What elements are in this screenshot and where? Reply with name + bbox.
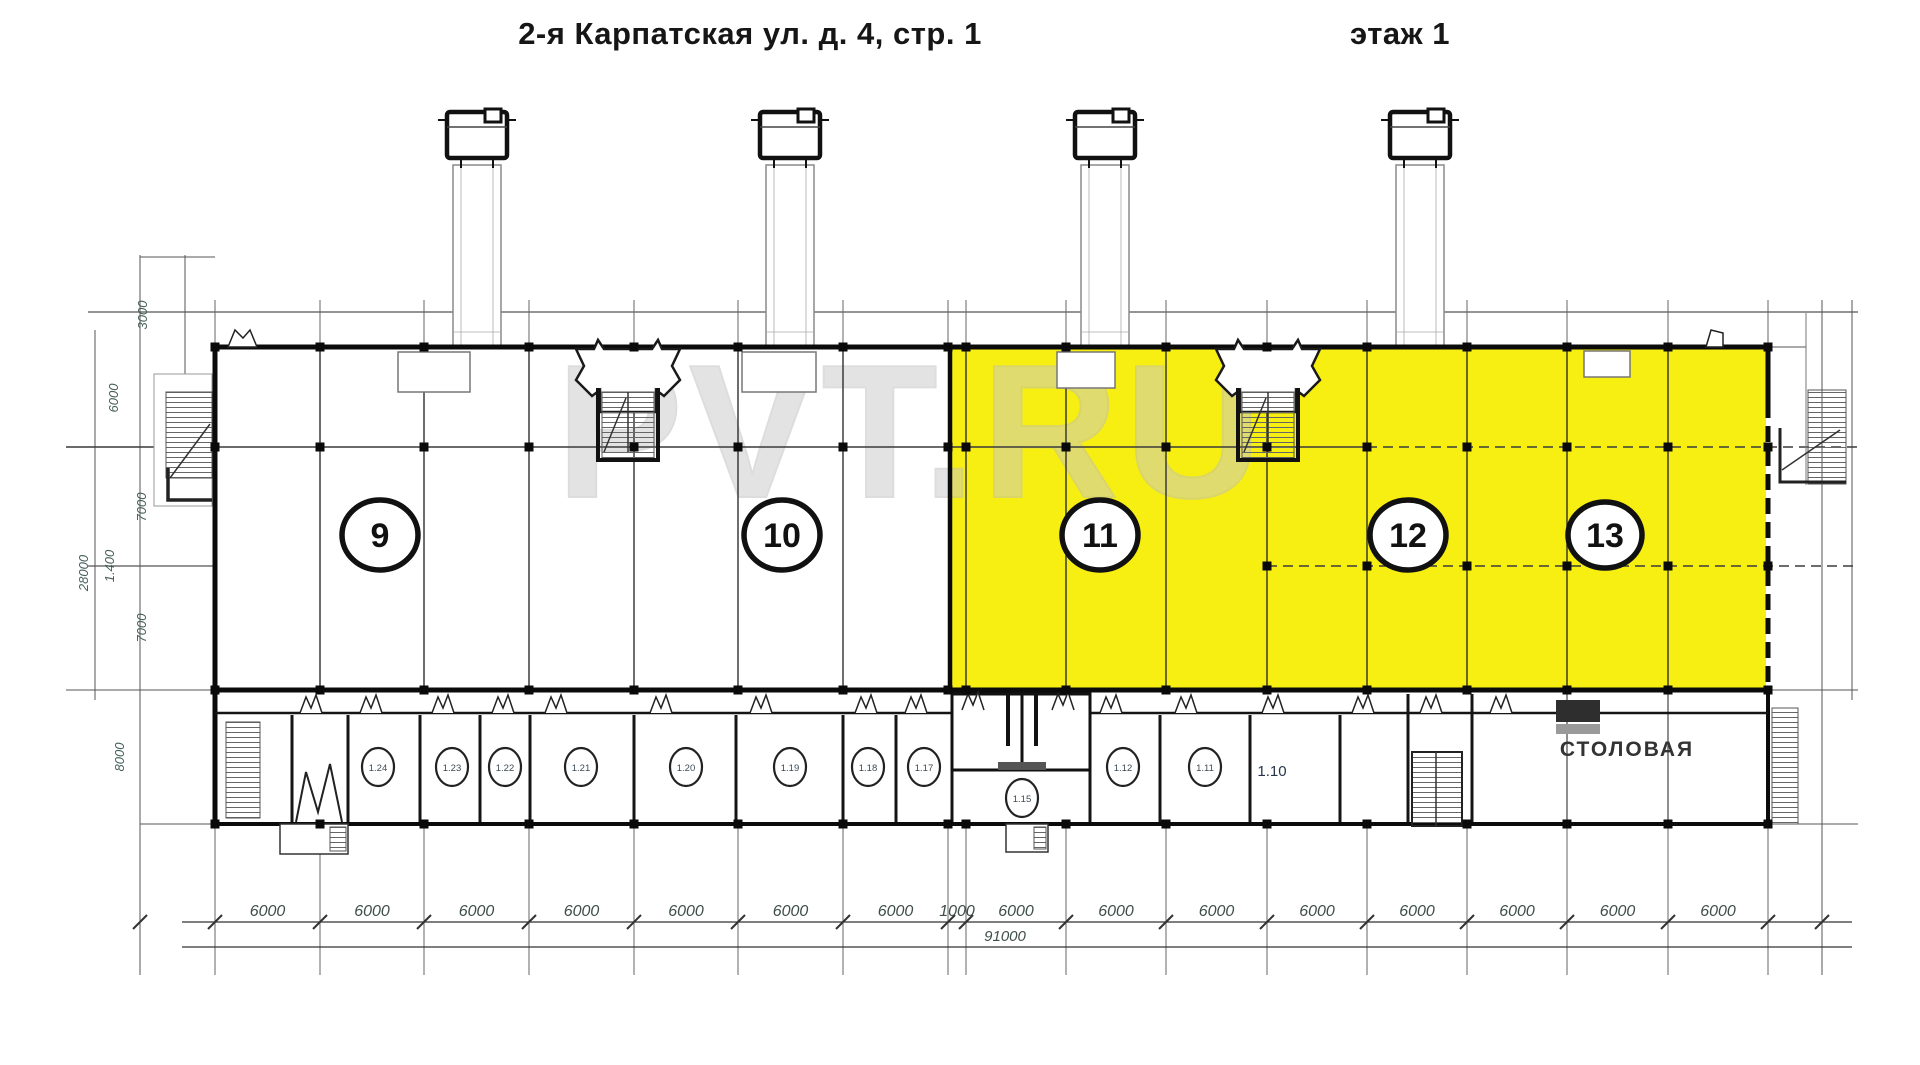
chimney	[751, 109, 829, 347]
section-circle-12: 12	[1370, 500, 1446, 570]
section-circle-10: 10	[744, 500, 820, 570]
dimension-label: 6000	[668, 903, 704, 920]
dimension-label: 6000	[878, 903, 914, 920]
exterior-staircase	[1772, 708, 1798, 824]
section-circle-9: 9	[342, 500, 418, 570]
room-number: 1.24	[369, 763, 388, 774]
chimney	[438, 109, 516, 347]
room-number-bubble: 1.12	[1107, 748, 1139, 786]
dimension-label: 3000	[135, 300, 150, 330]
section-circle-11: 11	[1062, 500, 1138, 570]
dimension-label: 6000	[1700, 903, 1736, 920]
wall-recess	[1057, 352, 1115, 388]
wall-recess	[742, 352, 816, 392]
svg-text:11: 11	[1082, 517, 1118, 555]
floor-plan-page: 2-я Карпатская ул. д. 4, стр. 1 этаж 1 P…	[0, 0, 1920, 1065]
room-number-bubble: 1.21	[565, 748, 597, 786]
room-number: 1.21	[572, 763, 591, 774]
dimension-label: 6000	[1299, 903, 1335, 920]
room-number-bubble: 1.22	[489, 748, 521, 786]
svg-text:13: 13	[1586, 517, 1624, 555]
wall-recess	[1584, 351, 1630, 377]
canteen-counter	[1556, 724, 1600, 734]
floor-plan-drawing: PVT.RU 1.241.231.221.211.201.191.181.171…	[0, 0, 1920, 1065]
dimension-label: 6000	[998, 903, 1034, 920]
svg-text:10: 10	[763, 517, 801, 555]
dimension-label: 6000	[1600, 903, 1636, 920]
room-number: 1.15	[1013, 794, 1032, 805]
room-number: 1.17	[915, 763, 934, 774]
entry-steps	[330, 827, 346, 851]
section-circle-13: 13	[1568, 502, 1642, 568]
room-number-bubble: 1.17	[908, 748, 940, 786]
total-dimension-label: 91000	[984, 928, 1026, 945]
dimension-label: 6000	[354, 903, 390, 920]
dimension-label: 6000	[250, 903, 286, 920]
chimney	[1066, 109, 1144, 347]
room-number: 1.19	[781, 763, 800, 774]
door-swing	[228, 330, 257, 347]
room-number-bubble: 1.24	[362, 748, 394, 786]
dimension-label: 28000	[76, 554, 91, 592]
canteen-label: СТОЛОВАЯ	[1560, 738, 1694, 761]
dimension-label: 6000	[1098, 903, 1134, 920]
interior-staircase	[226, 722, 342, 822]
dimension-label: 8000	[112, 742, 127, 772]
room-1-10-label: 1.10	[1257, 763, 1286, 780]
exterior-staircase	[1780, 313, 1846, 485]
exterior-staircase	[154, 374, 212, 506]
room-number: 1.23	[443, 763, 462, 774]
room-number-bubble: 1.19	[774, 748, 806, 786]
dimension-label: 6000	[564, 903, 600, 920]
svg-text:12: 12	[1389, 517, 1427, 555]
dimension-label: 7000	[134, 613, 149, 643]
dimension-label: 6000	[106, 383, 121, 413]
room-number-bubble: 1.11	[1189, 748, 1221, 786]
dimension-label: 6000	[1199, 903, 1235, 920]
dimension-label: 1.400	[102, 549, 117, 582]
room-number-bubble: 1.23	[436, 748, 468, 786]
dimension-label: 6000	[459, 903, 495, 920]
door-swing	[1706, 330, 1723, 347]
wall-recess	[398, 352, 470, 392]
room-number-bubble: 1.20	[670, 748, 702, 786]
interior-staircase	[1412, 752, 1462, 826]
room-number: 1.18	[859, 763, 878, 774]
room-number-bubble: 1.18	[852, 748, 884, 786]
dimension-label: 6000	[773, 903, 809, 920]
room-number: 1.22	[496, 763, 515, 774]
canteen-counter	[1556, 700, 1600, 722]
dimension-label: 1000	[939, 903, 975, 920]
room-number-bubble: 1.15	[1006, 779, 1038, 817]
room-number: 1.20	[677, 763, 696, 774]
room-number: 1.12	[1114, 763, 1133, 774]
chimney	[1381, 109, 1459, 347]
svg-text:9: 9	[371, 517, 390, 555]
dimension-label: 7000	[134, 492, 149, 522]
dimension-label: 6000	[1399, 903, 1435, 920]
room-number: 1.11	[1196, 763, 1214, 774]
dimension-label: 6000	[1499, 903, 1535, 920]
